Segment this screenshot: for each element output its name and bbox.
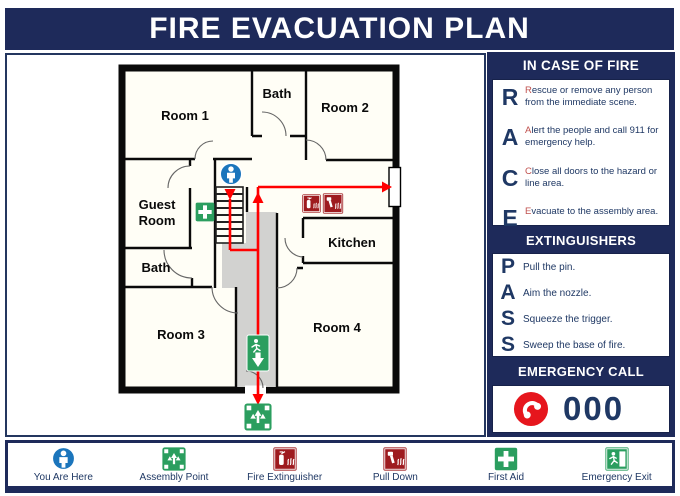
legend-item-first-aid: First Aid <box>451 447 562 483</box>
assembly-point-icon <box>244 403 271 430</box>
pass-letter: S <box>493 333 523 357</box>
pass-letter: P <box>493 255 523 279</box>
race-letter: E <box>495 206 525 230</box>
pull-down-icon <box>383 447 407 471</box>
page-title: FIRE EVACUATION PLAN <box>5 8 674 50</box>
pass-row-p: P Pull the pin. <box>493 254 669 280</box>
first-aid-icon <box>196 203 215 222</box>
race-letter: C <box>495 166 525 190</box>
pass-text: Sweep the base of fire. <box>523 340 669 351</box>
room-label-guest-2: Room <box>139 213 176 228</box>
legend-item-fire-extinguisher: Fire Extinguisher <box>229 447 340 483</box>
room-label-room2: Room 2 <box>321 100 369 115</box>
phone-icon <box>513 391 549 427</box>
legend-label: Emergency Exit <box>582 472 652 483</box>
pass-row-s1: S Squeeze the trigger. <box>493 306 669 332</box>
fire-extinguisher-icon <box>273 447 297 471</box>
you-are-here-icon <box>220 163 242 185</box>
assembly-point-icon <box>162 447 186 471</box>
first-aid-icon <box>494 447 518 471</box>
emergency-exit-icon <box>605 447 629 471</box>
room-label-bath-top: Bath <box>263 86 292 101</box>
sidebar: IN CASE OF FIRE R Rescue or remove any p… <box>487 52 675 437</box>
pass-text: Aim the nozzle. <box>523 288 669 299</box>
room-label-room3: Room 3 <box>157 327 205 342</box>
fire-evacuation-poster: FIRE EVACUATION PLAN <box>0 0 680 496</box>
legend-item-emergency-exit: Emergency Exit <box>561 447 672 483</box>
pass-row-s2: S Sweep the base of fire. <box>493 332 669 358</box>
pass-text: Squeeze the trigger. <box>523 314 669 325</box>
legend-label: You Are Here <box>34 472 93 483</box>
pass-letter: A <box>493 281 523 305</box>
floor-plan: Room 1 Bath Room 2 Guest Room Kitchen Ba… <box>5 53 486 437</box>
pass-text: Pull the pin. <box>523 262 669 273</box>
race-text: Close all doors to the hazard or line ar… <box>525 166 667 189</box>
room-label-guest-1: Guest <box>139 197 177 212</box>
legend-item-pull-down: Pull Down <box>340 447 451 483</box>
legend: You Are Here Assembly Point Fire Extingu… <box>5 440 675 493</box>
emergency-exit-sign <box>247 335 269 371</box>
emergency-call-header: EMERGENCY CALL <box>487 360 675 382</box>
legend-label: Fire Extinguisher <box>247 472 322 483</box>
room-label-kitchen: Kitchen <box>328 235 376 250</box>
legend-label: Pull Down <box>373 472 418 483</box>
you-are-here-icon <box>51 446 76 471</box>
race-row-e: E Evacuate to the assembly area. <box>495 206 667 226</box>
arrow-south-exit <box>253 394 264 405</box>
emergency-number: 000 <box>563 390 624 428</box>
pass-row-a: A Aim the nozzle. <box>493 280 669 306</box>
room-label-room4: Room 4 <box>313 320 361 335</box>
room-label-bath-left: Bath <box>142 260 171 275</box>
fire-extinguisher-icon <box>302 194 320 212</box>
race-text: Rescue or remove any person from the imm… <box>525 85 667 108</box>
race-box: R Rescue or remove any person from the i… <box>492 79 670 226</box>
pass-box: P Pull the pin. A Aim the nozzle. S Sque… <box>492 253 670 357</box>
extinguishers-header: EXTINGUISHERS <box>487 230 675 251</box>
legend-label: First Aid <box>488 472 524 483</box>
race-row-c: C Close all doors to the hazard or line … <box>495 166 667 206</box>
pull-down-icon <box>323 193 343 213</box>
legend-item-you-are-here: You Are Here <box>8 446 119 483</box>
race-letter: A <box>495 125 525 149</box>
race-letter: R <box>495 85 525 109</box>
race-text: Alert the people and call 911 for emerge… <box>525 125 667 148</box>
race-text: Evacuate to the assembly area. <box>525 206 667 218</box>
pass-letter: S <box>493 307 523 331</box>
emergency-call-box: 000 <box>492 385 670 433</box>
legend-item-assembly-point: Assembly Point <box>119 447 230 483</box>
race-row-r: R Rescue or remove any person from the i… <box>495 85 667 125</box>
room-label-room1: Room 1 <box>161 108 209 123</box>
race-row-a: A Alert the people and call 911 for emer… <box>495 125 667 166</box>
in-case-of-fire-header: IN CASE OF FIRE <box>487 52 675 79</box>
legend-label: Assembly Point <box>140 472 209 483</box>
